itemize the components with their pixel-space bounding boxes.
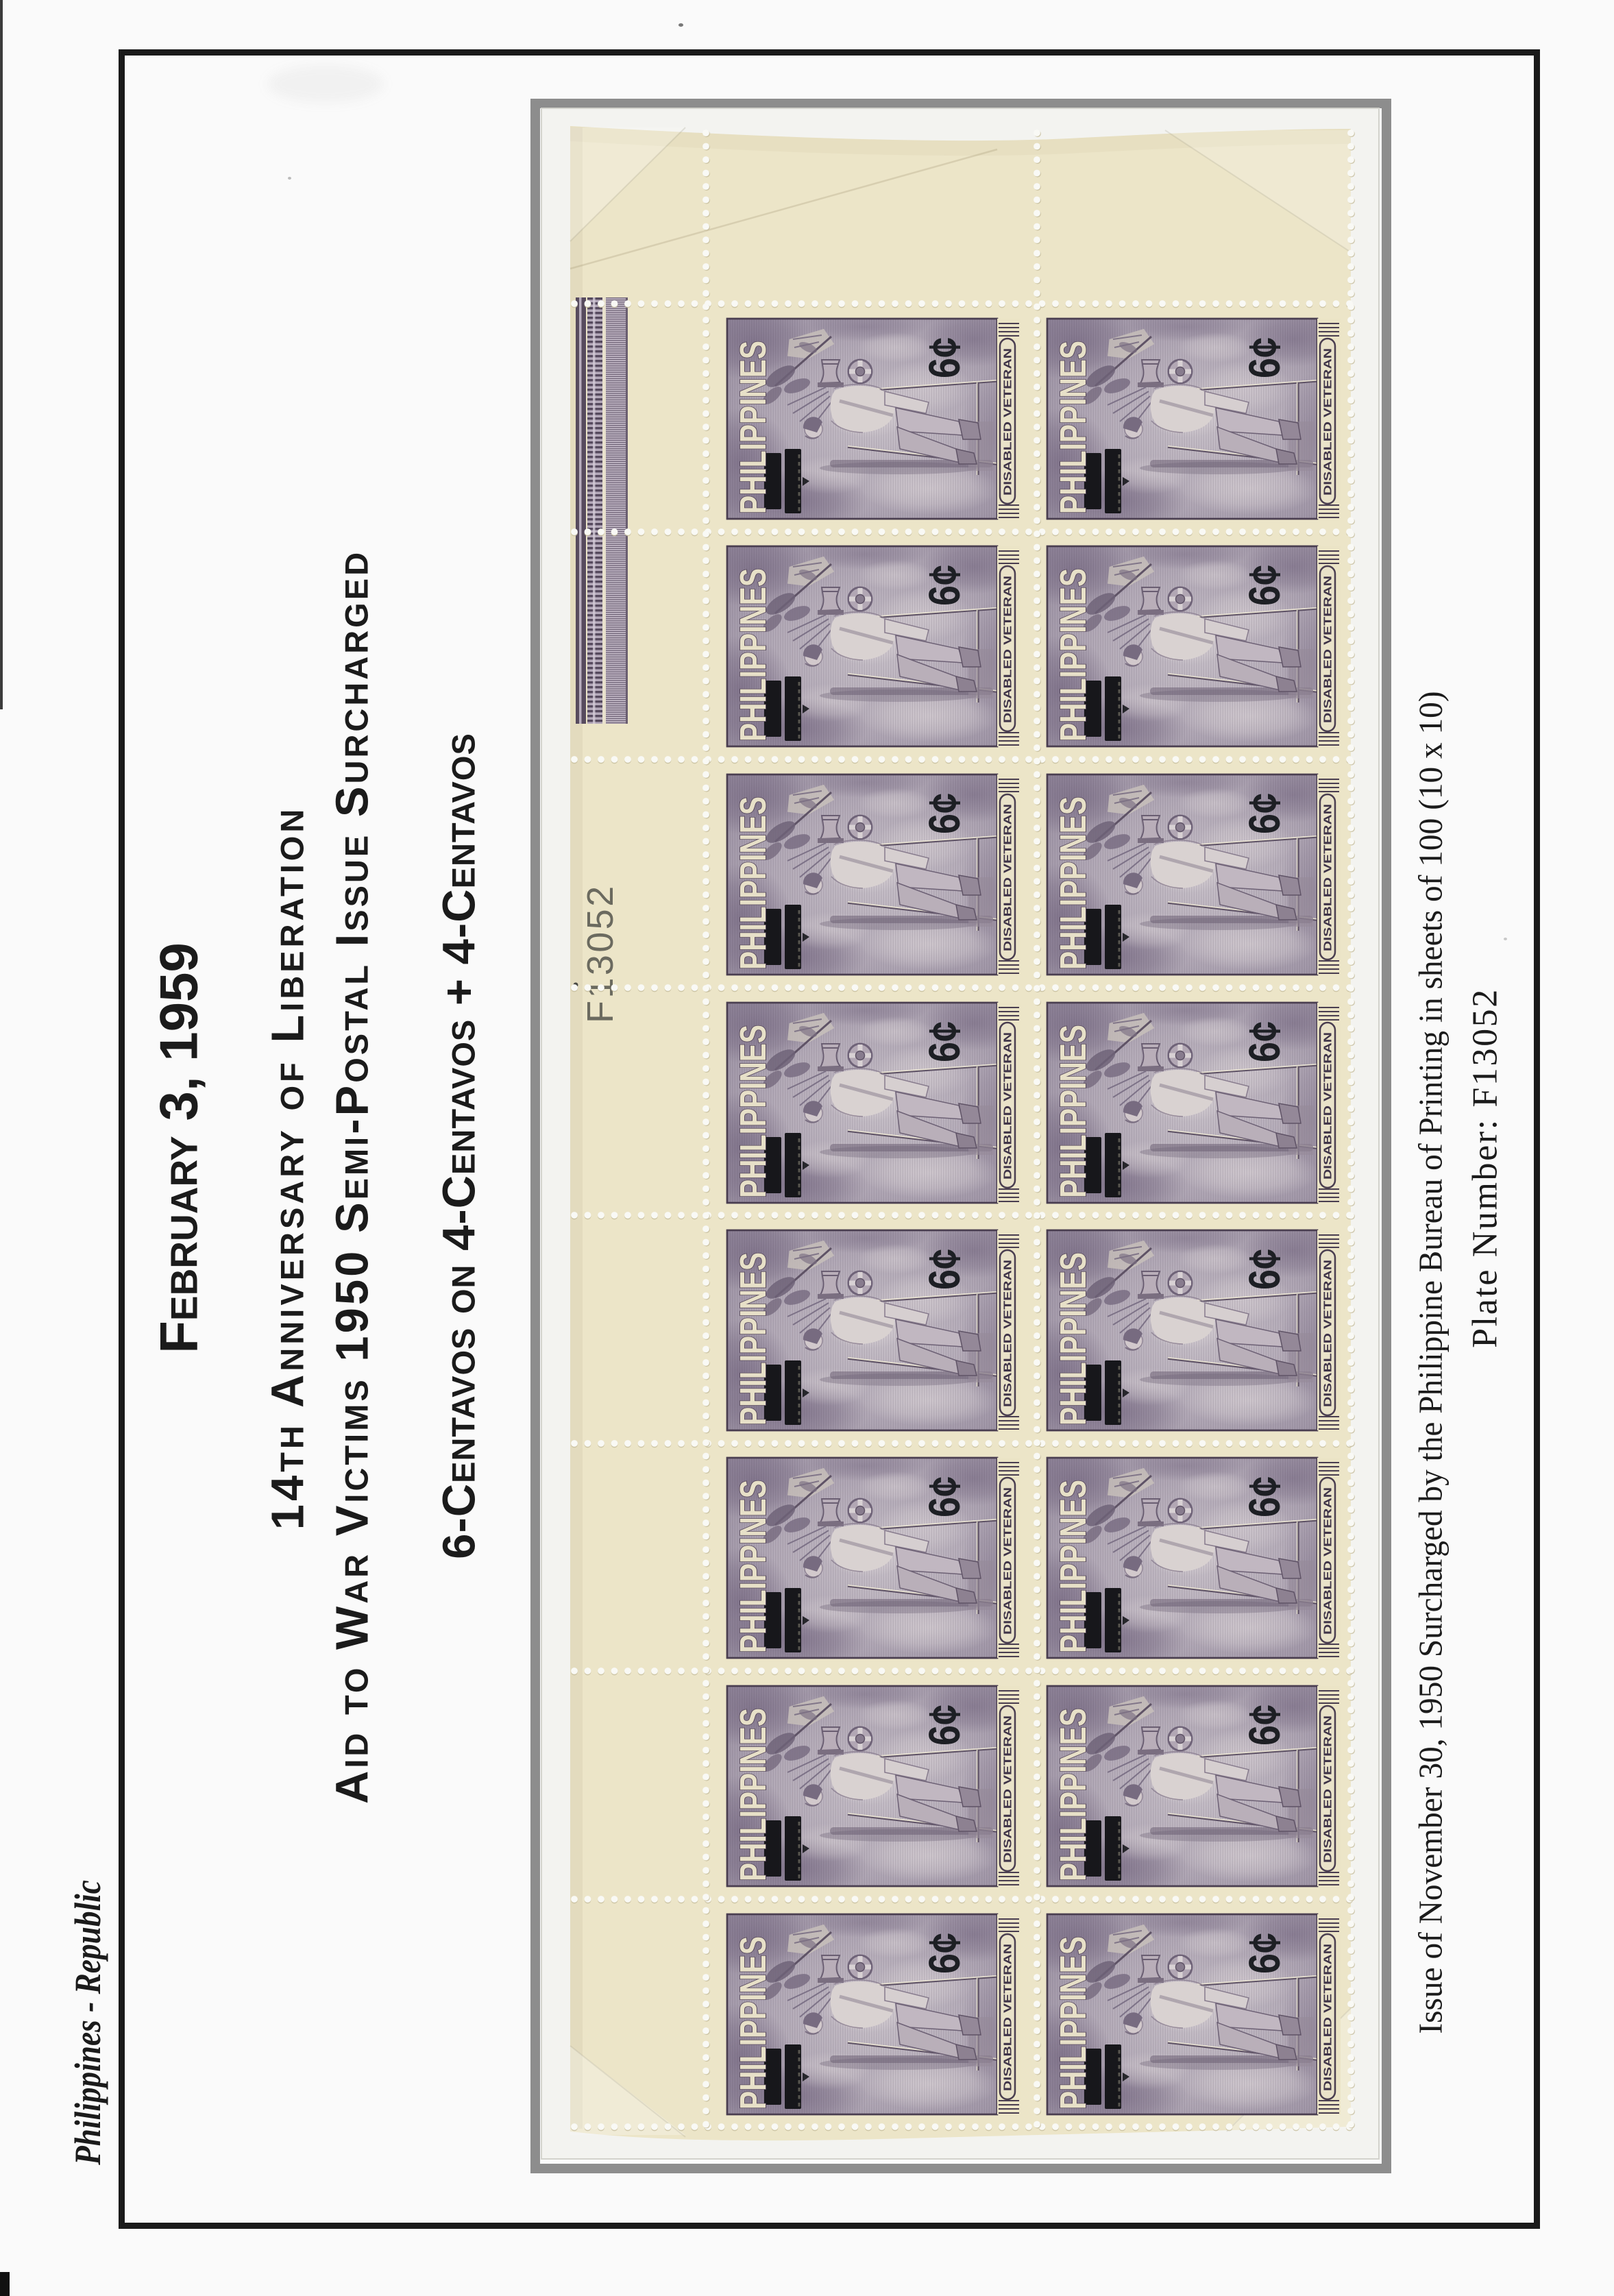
svg-text:F13052: F13052 bbox=[580, 883, 621, 1023]
